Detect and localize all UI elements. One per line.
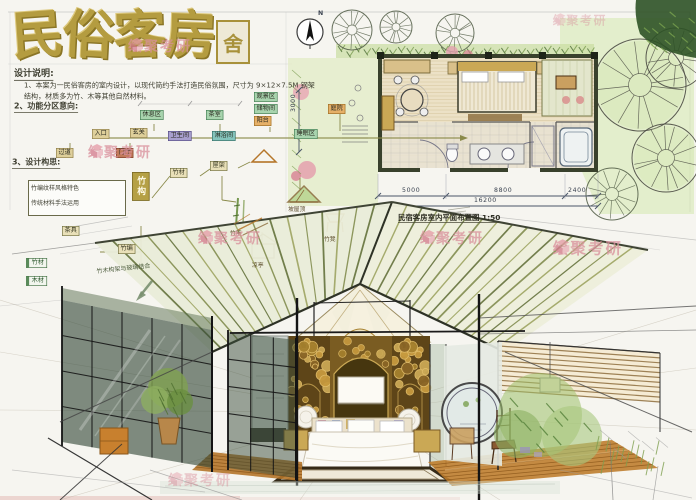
flow-box: 过道 <box>56 148 73 158</box>
watermark-logo <box>88 142 106 160</box>
material-box: 木材 <box>26 276 47 286</box>
flow-box: 休息区 <box>140 110 164 120</box>
flow-box: 卫生间 <box>168 131 192 141</box>
north-label: N <box>318 10 324 17</box>
watermark-logo <box>168 470 186 488</box>
flow-box: 观景区 <box>254 92 278 102</box>
concept-note-box: 竹编纹样风格特色 传统材料手法运用 <box>28 180 126 216</box>
flow-box: 阳台 <box>254 116 271 126</box>
concept-note-1: 竹编纹样风格特色 <box>31 183 121 192</box>
concept-note-2: 传统材料手法运用 <box>31 198 121 207</box>
watermark: 绘聚考研 <box>168 470 232 490</box>
plan-title: 民宿客房室内平面布置图 1:50 <box>398 211 500 223</box>
notes-section3: 3、设计构思: <box>12 156 60 169</box>
concept-node: 茶具 <box>62 226 79 236</box>
watermark-logo <box>553 237 573 257</box>
watermark: 绘聚考研 <box>553 237 623 259</box>
dim-label: 5000 <box>402 187 420 194</box>
flow-box: 茶室 <box>206 110 223 120</box>
sketch-caption: 竹凳 <box>324 234 336 243</box>
watermark-logo <box>198 228 216 246</box>
watermark: 绘聚考研 <box>420 228 484 248</box>
concept-node: 竹编 <box>118 244 135 254</box>
watermark: 绘聚考研 <box>128 36 192 56</box>
concept-node: 竹材 <box>170 168 187 178</box>
notes-line1: 1、本案为一民俗客房的室内设计，以现代简约手法打造民俗氛围，尺寸为 9×12×7… <box>24 80 315 90</box>
material-box: 竹材 <box>26 258 47 268</box>
design-board: 民 俗 客 房 舍 设计说明: 1、本案为一民俗客房的室内设计，以现代简约手法打… <box>0 0 696 500</box>
sketch-caption: 凉亭 <box>252 260 264 269</box>
flow-box: 入口 <box>92 129 109 139</box>
flow-box: 储物间 <box>254 104 278 114</box>
dim-side-label: 3000 <box>290 94 297 112</box>
title-char: 俗 <box>62 11 114 63</box>
title-seal: 舍 <box>216 20 250 64</box>
dim-label: 2400 <box>568 187 586 194</box>
notes-section2: 2、功能分区意向: <box>14 100 78 113</box>
watermark-logo <box>553 12 568 27</box>
notes-heading: 设计说明: <box>14 66 54 81</box>
flow-box: 淋浴间 <box>212 131 236 141</box>
watermark: 绘聚考研 <box>198 228 262 248</box>
concept-node-main: 竹构 <box>132 172 150 201</box>
watermark: 绘聚考研 <box>88 142 152 162</box>
dim-total-label: 16200 <box>474 197 497 204</box>
flow-box: 睡眠区 <box>294 129 318 139</box>
watermark-logo <box>420 228 438 246</box>
watermark: 绘聚考研 <box>553 12 607 29</box>
dim-label: 8800 <box>494 187 512 194</box>
concept-node: 屋架 <box>210 161 227 171</box>
title-char: 民 <box>10 10 62 63</box>
flow-box: 玄关 <box>130 128 147 138</box>
sketch-caption: 坡屋顶 <box>288 204 305 213</box>
flow-box: 庭院 <box>328 104 345 114</box>
watermark-logo <box>128 36 146 54</box>
